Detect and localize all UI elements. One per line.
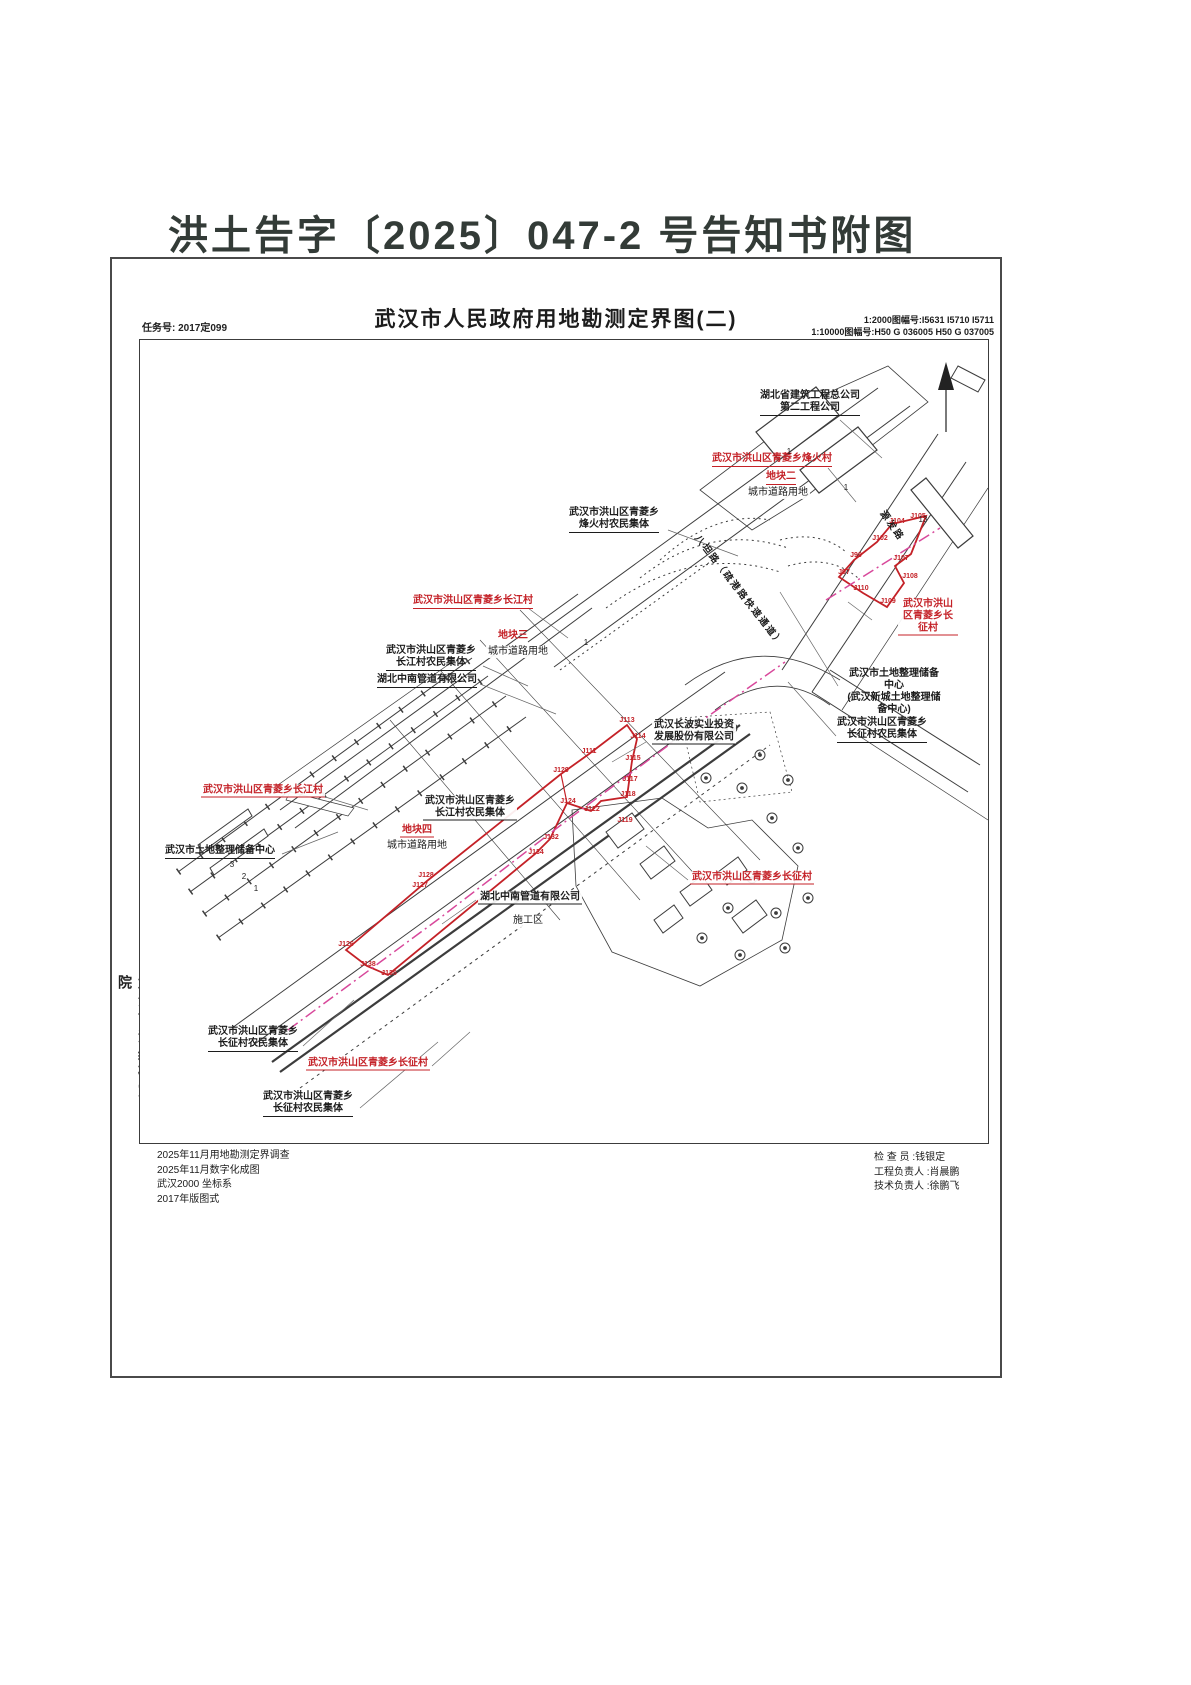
label-changjiang-village-collective-mid: 武汉市洪山区青菱乡 长江村农民集体	[423, 796, 517, 821]
label-land-reserve-center-right: 武汉市土地整理储备中心 (武汉新城土地整理储备中心)	[847, 668, 941, 716]
boundary-point-J110: J110	[853, 585, 868, 592]
label-land-reserve-center-left: 武汉市土地整理储备中心	[165, 845, 275, 859]
note-project-lead: 工程负责人 :肖晨鹏	[874, 1166, 960, 1181]
document-title: 洪土告字〔2025〕047-2 号告知书附图	[168, 203, 916, 261]
map-frame: 武汉市洪山区青菱乡烽火村 地块二 武汉市洪山区青菱乡长征村 武汉市洪山区青菱乡长…	[139, 339, 989, 1144]
boundary-point-J114: J114	[630, 733, 645, 740]
label-urban-road-land-parcel4: 城市道路用地	[385, 840, 449, 852]
parcel-number: 1	[844, 484, 848, 492]
boundary-point-J99: J99	[850, 552, 862, 559]
boundary-point-J102: J102	[872, 535, 888, 542]
boundary-point-J135: J135	[381, 970, 397, 977]
note-symbology-edition: 2017年版图式	[157, 1193, 290, 1208]
sheet-numbers: 1:2000图幅号:I5631 I5710 I5711 1:10000图幅号:H…	[811, 314, 994, 338]
boundary-point-J115: J115	[625, 755, 640, 762]
red-label-parcel-4: 地块四	[400, 825, 434, 838]
sheet-number-1-10000: 1:10000图幅号:H50 G 036005 H50 G 037005	[811, 326, 994, 338]
parcel-number: 1	[584, 639, 588, 647]
parcel-number-13: 13	[919, 516, 928, 524]
note-survey-date: 2025年11月用地勘测定界调查	[157, 1149, 290, 1164]
scanned-document-page: 洪土告字〔2025〕047-2 号告知书附图 任务号: 2017定099 武汉市…	[0, 0, 1191, 1685]
boundary-point-J118: J118	[620, 791, 635, 798]
red-label-fenghuo-village: 武汉市洪山区青菱乡烽火村	[712, 453, 832, 467]
label-fenghuo-village-collective: 武汉市洪山区青菱乡 烽火村农民集体	[569, 507, 659, 533]
label-changzheng-village-collective-right: 武汉市洪山区青菱乡 长征村农民集体	[837, 717, 927, 743]
boundary-point-J111: J111	[582, 748, 597, 755]
track-number: 1	[254, 885, 258, 893]
boundary-point-J124: J124	[560, 798, 576, 805]
boundary-point-J119: J119	[617, 817, 632, 824]
boundary-point-J109: J109	[880, 598, 896, 605]
track-number: 2	[242, 873, 246, 881]
map-notes-right: 检 查 员 :钱银定 工程负责人 :肖晨鹏 技术负责人 :徐鹏飞	[874, 1151, 960, 1195]
parcel-number: 1	[787, 448, 791, 456]
drawing-sheet-border: 任务号: 2017定099 武汉市人民政府用地勘测定界图(二) 1:2000图幅…	[110, 257, 1002, 1378]
label-changjiang-village-collective-upper: 武汉市洪山区青菱乡 长江村农民集体	[386, 645, 476, 671]
map-notes-left: 2025年11月用地勘测定界调查 2025年11月数字化成图 武汉2000 坐标…	[157, 1149, 290, 1207]
note-digitization-date: 2025年11月数字化成图	[157, 1164, 290, 1179]
boundary-point-J129: J129	[553, 767, 569, 774]
label-zhongnan-pipeline-company-lower: 湖北中南管道有限公司	[478, 892, 582, 905]
red-label-changjiang-village-left: 武汉市洪山区青菱乡长江村	[201, 785, 325, 798]
red-label-changzheng-village-topright: 武汉市洪山区青菱乡长征村	[898, 599, 958, 636]
north-arrow	[938, 362, 954, 432]
label-urban-road-land-center: 城市道路用地	[486, 646, 550, 658]
boundary-point-J122: J122	[584, 806, 600, 813]
label-zhongnan-pipeline-company-upper: 湖北中南管道有限公司	[377, 674, 477, 688]
label-changbo-industry-company: 武汉长波实业投资 发展股份有限公司	[652, 720, 736, 745]
note-inspector: 检 查 员 :钱银定	[874, 1151, 960, 1166]
label-hubei-construction-company: 湖北省建筑工程总公司 第二工程公司	[760, 390, 860, 416]
boundary-point-J128: J128	[418, 872, 434, 879]
boundary-point-J132: J132	[543, 834, 559, 841]
boundary-point-J104: J104	[889, 518, 905, 525]
label-construction-zone: 施工区	[511, 915, 545, 927]
boundary-point-J126: J126	[338, 941, 354, 948]
red-label-changjiang-village-upper: 武汉市洪山区青菱乡长江村	[413, 595, 533, 609]
red-label-changzheng-village-bottom: 武汉市洪山区青菱乡长征村	[306, 1058, 430, 1071]
boundary-point-J97: J97	[838, 569, 850, 576]
label-urban-road-land-top: 城市道路用地	[746, 487, 810, 499]
red-boundary-parcels	[346, 516, 926, 975]
boundary-point-J134: J134	[528, 849, 544, 856]
note-technical-lead: 技术负责人 :徐鹏飞	[874, 1180, 960, 1195]
boundary-point-J107: J107	[893, 555, 909, 562]
boundary-point-J138: J138	[360, 961, 376, 968]
red-label-parcel-3: 地块三	[498, 630, 528, 642]
boundary-point-J117: J117	[622, 776, 637, 783]
label-changzheng-village-collective-bottommid: 武汉市洪山区青菱乡 长征村农民集体	[263, 1091, 353, 1117]
label-changzheng-village-collective-bottomleft: 武汉市洪山区青菱乡 长征村农民集体	[208, 1026, 298, 1052]
note-coordinate-system: 武汉2000 坐标系	[157, 1178, 290, 1193]
red-label-changzheng-village-mid: 武汉市洪山区青菱乡长征村	[690, 872, 814, 885]
sheet-number-1-2000: 1:2000图幅号:I5631 I5710 I5711	[811, 314, 994, 326]
track-number: 3	[230, 861, 234, 869]
boundary-point-J108: J108	[902, 573, 918, 580]
boundary-point-J127: J127	[412, 882, 428, 889]
pipeline-dashdot-line	[288, 528, 940, 1030]
red-label-parcel-2: 地块二	[766, 471, 796, 485]
boundary-point-J113: J113	[619, 717, 634, 724]
